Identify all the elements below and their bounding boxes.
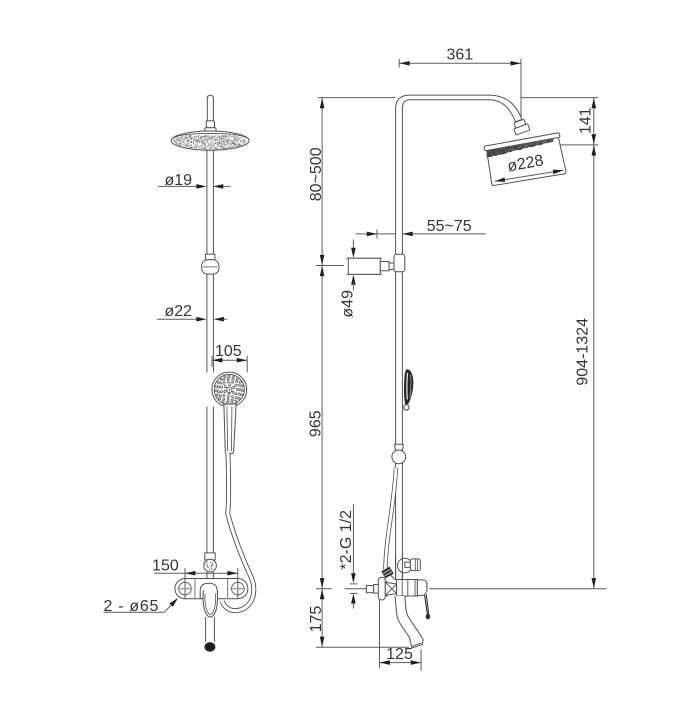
- svg-text:105: 105: [215, 343, 242, 360]
- svg-text:141: 141: [578, 107, 595, 134]
- svg-text:55~75: 55~75: [427, 218, 472, 235]
- svg-text:80~500: 80~500: [308, 147, 325, 201]
- svg-text:ø22: ø22: [165, 303, 193, 320]
- svg-text:*2-G 1/2: *2-G 1/2: [338, 510, 355, 570]
- svg-text:ø49: ø49: [339, 290, 356, 318]
- svg-text:2 - ø65: 2 - ø65: [104, 598, 160, 615]
- svg-text:150: 150: [152, 557, 179, 574]
- svg-text:175: 175: [308, 606, 325, 633]
- svg-text:904-1324: 904-1324: [575, 318, 592, 386]
- svg-text:965: 965: [307, 410, 324, 437]
- svg-text:361: 361: [446, 46, 473, 63]
- svg-text:125: 125: [386, 646, 413, 663]
- svg-text:ø19: ø19: [165, 172, 193, 189]
